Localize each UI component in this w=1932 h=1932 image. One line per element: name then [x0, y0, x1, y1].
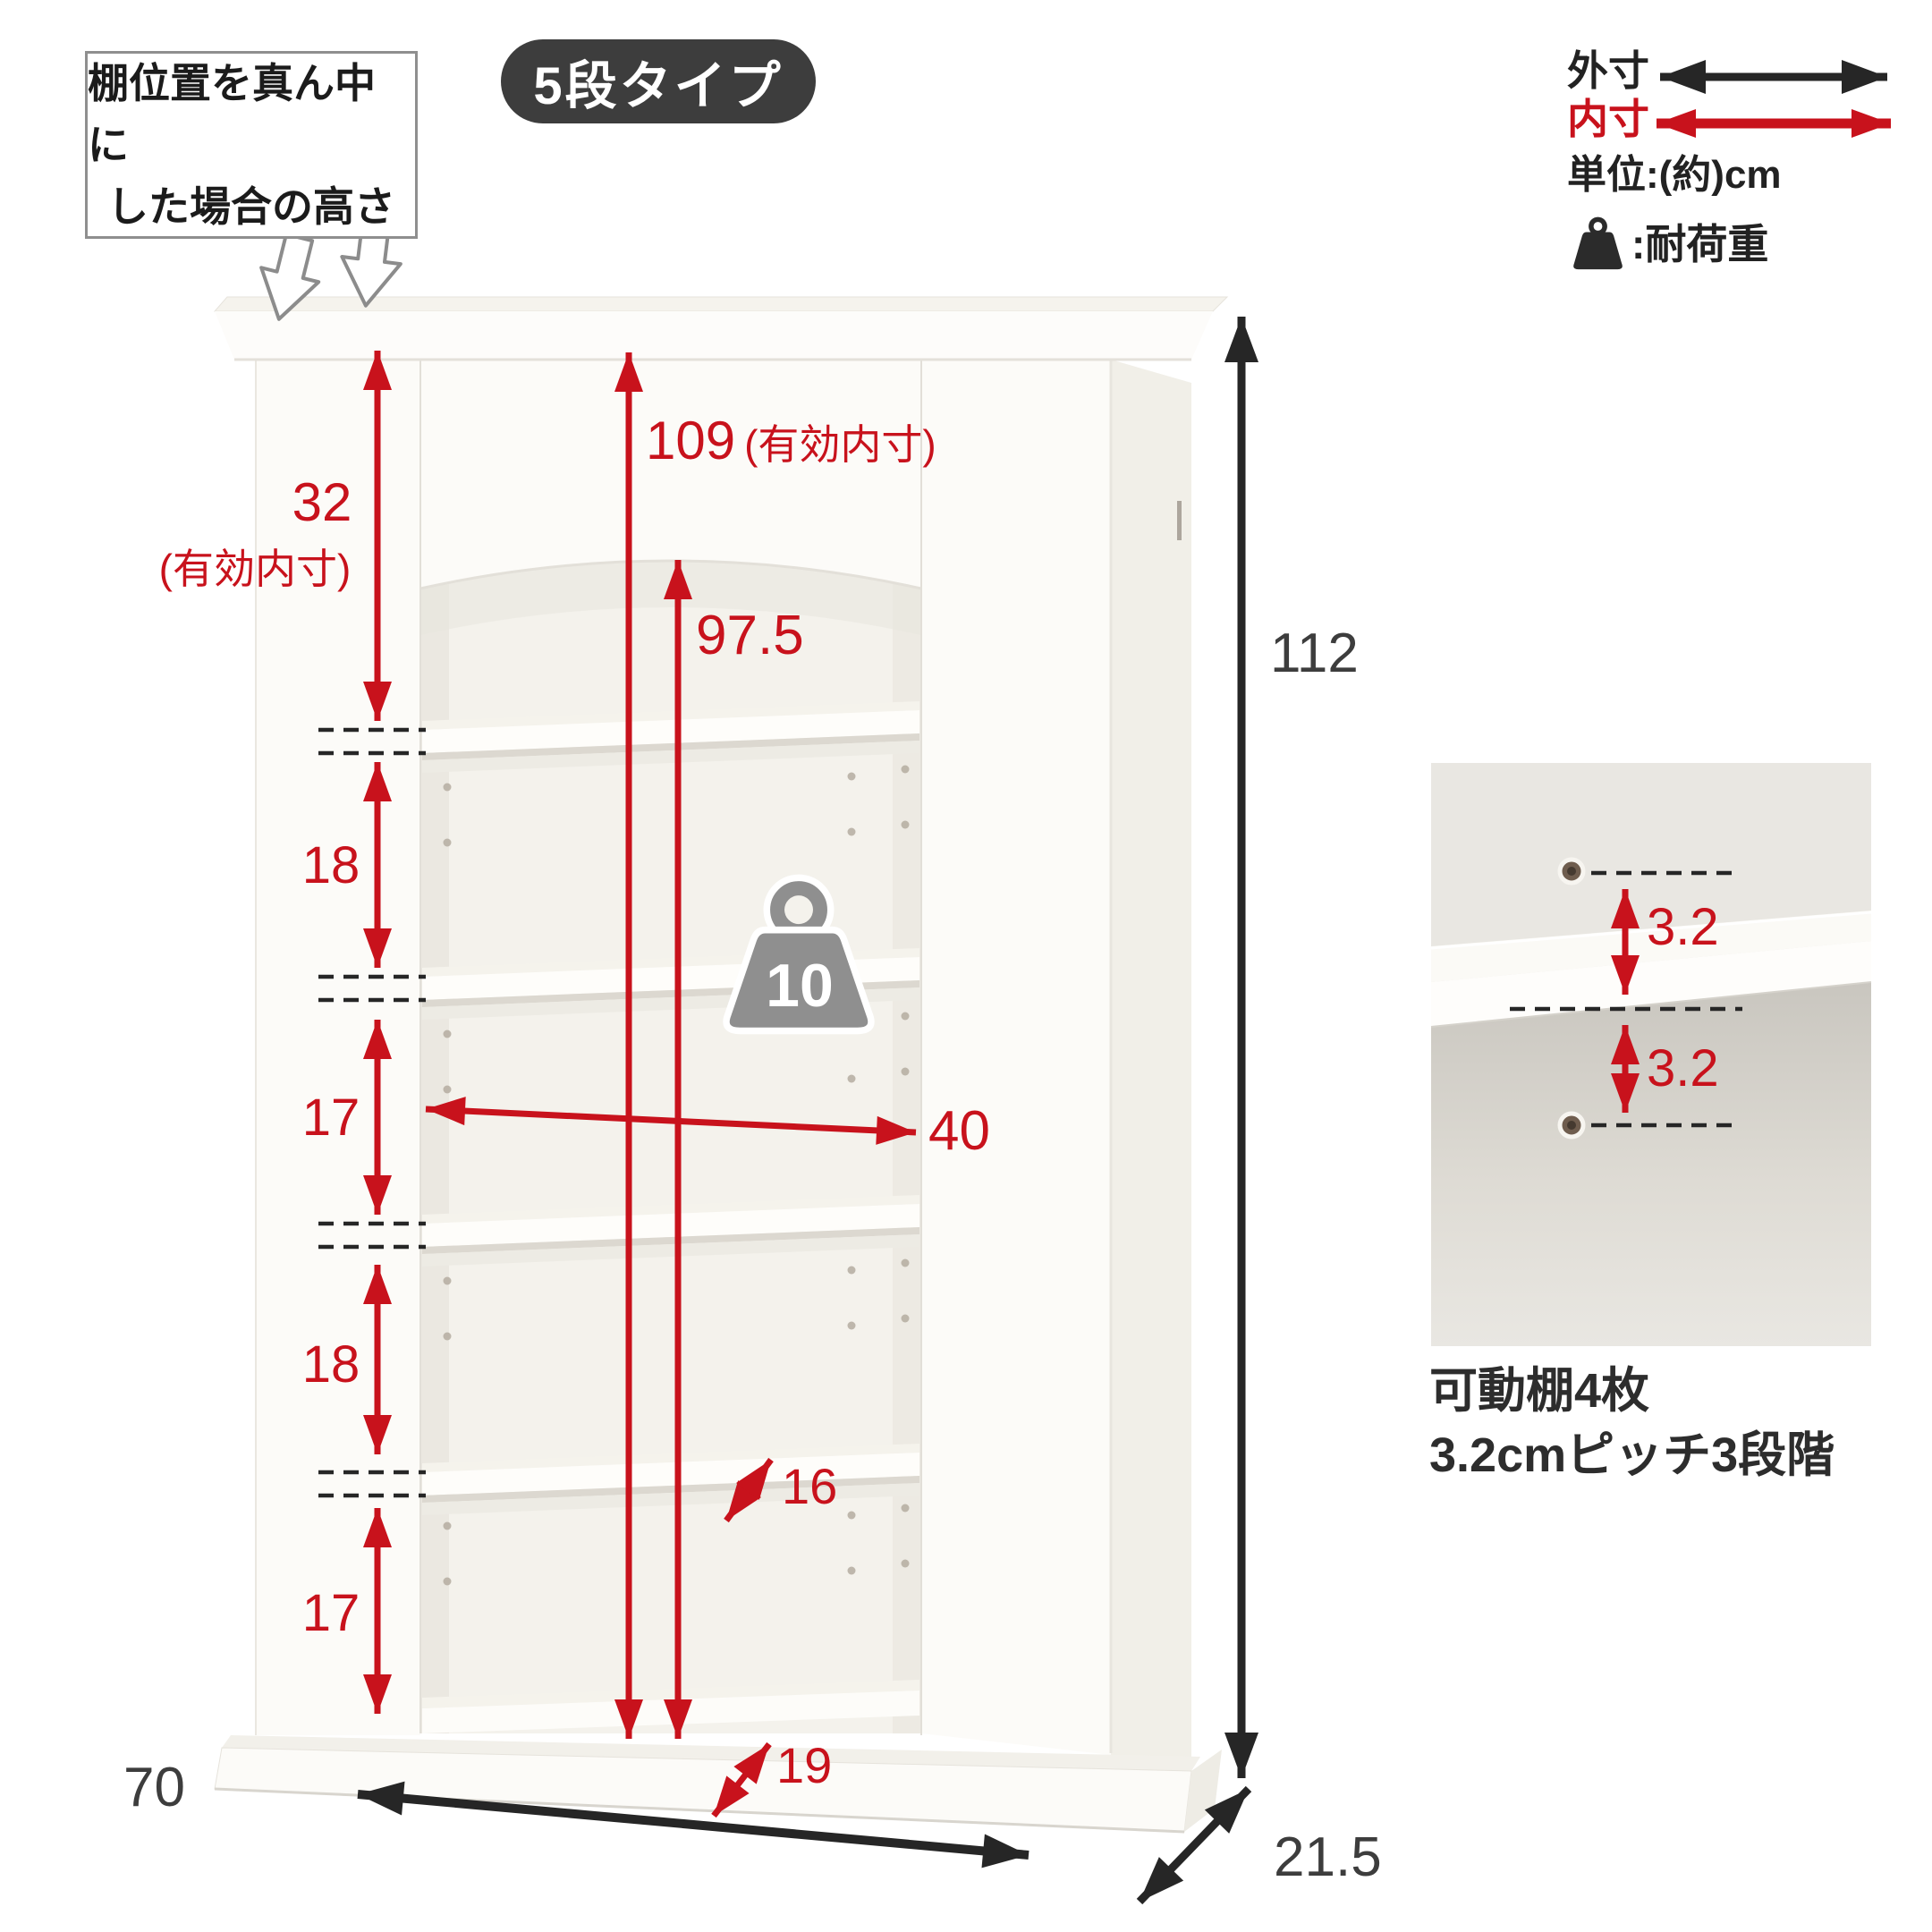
- detail-caption-line-1: 可動棚4枚: [1429, 1367, 1649, 1415]
- callout-line-2: した場合の高さ: [107, 176, 395, 238]
- legend-unit-label: 単位:(約)cm: [1567, 156, 1782, 195]
- text-layer: 棚位置を真ん中に した場合の高さ 5段タイプ 外寸 内寸 単位:(約)cm :耐…: [0, 0, 1932, 1932]
- dim-gap-3: 18: [302, 1339, 360, 1391]
- dim-top-opening: 32: [292, 476, 352, 530]
- legend-load-label: :耐荷重: [1631, 224, 1768, 265]
- load-capacity-value: 10: [766, 955, 834, 1016]
- dim-gap-4: 17: [302, 1588, 360, 1640]
- dim-overall-height: 112: [1270, 626, 1359, 682]
- pitch-lower-label: 3.2: [1647, 1043, 1719, 1095]
- dim-shelf-depth: 16: [782, 1462, 837, 1512]
- callout-box: 棚位置を真ん中に した場合の高さ: [85, 51, 418, 239]
- dim-arch-height: 97.5: [696, 608, 804, 664]
- pitch-upper-label: 3.2: [1647, 902, 1719, 953]
- dim-interior-height: 109: [646, 410, 735, 471]
- product-dimension-diagram: 棚位置を真ん中に した場合の高さ 5段タイプ 外寸 内寸 単位:(約)cm :耐…: [0, 0, 1932, 1932]
- legend-outer-label: 外寸: [1567, 50, 1649, 91]
- type-badge-label: 5段タイプ: [533, 44, 783, 119]
- callout-line-1: 棚位置を真ん中に: [88, 53, 415, 176]
- detail-caption-line-2: 3.2cmピッチ3段階: [1429, 1431, 1835, 1479]
- dim-overall-width: 70: [123, 1760, 185, 1816]
- dim-base-depth: 19: [776, 1741, 832, 1791]
- type-badge: 5段タイプ: [501, 39, 816, 123]
- dim-overall-depth: 21.5: [1274, 1830, 1382, 1885]
- dim-interior-height-note: (有効内寸): [744, 412, 936, 471]
- legend-inner-label: 内寸: [1567, 98, 1649, 140]
- dim-interior-width: 40: [928, 1104, 990, 1159]
- dim-gap-1: 18: [302, 840, 360, 892]
- dim-gap-2: 17: [302, 1092, 360, 1144]
- dim-interior-height-group: 109 (有効内寸): [646, 410, 936, 471]
- dim-top-opening-note: (有効内寸): [159, 548, 352, 589]
